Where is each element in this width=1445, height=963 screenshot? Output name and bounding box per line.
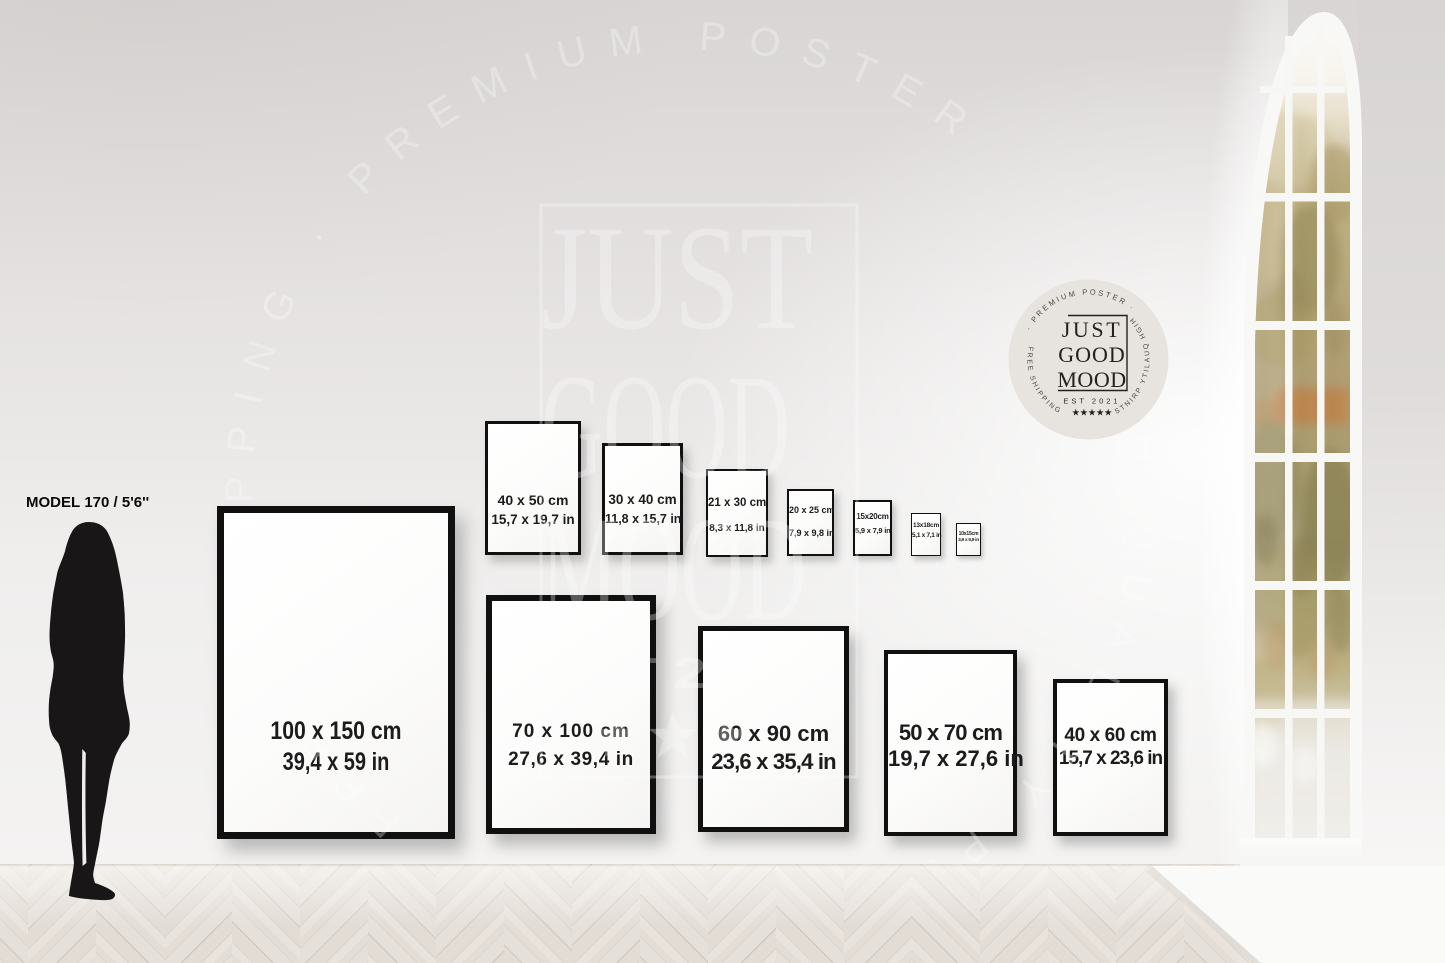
svg-text:MOOD: MOOD	[1057, 367, 1126, 392]
svg-text:GOOD: GOOD	[1058, 342, 1126, 367]
svg-text:JUST: JUST	[541, 195, 813, 361]
svg-text:JUST: JUST	[1062, 317, 1123, 342]
svg-text:PREMIUM POSTER: PREMIUM POSTER	[340, 14, 994, 202]
svg-text:EST 2021: EST 2021	[1063, 397, 1120, 406]
